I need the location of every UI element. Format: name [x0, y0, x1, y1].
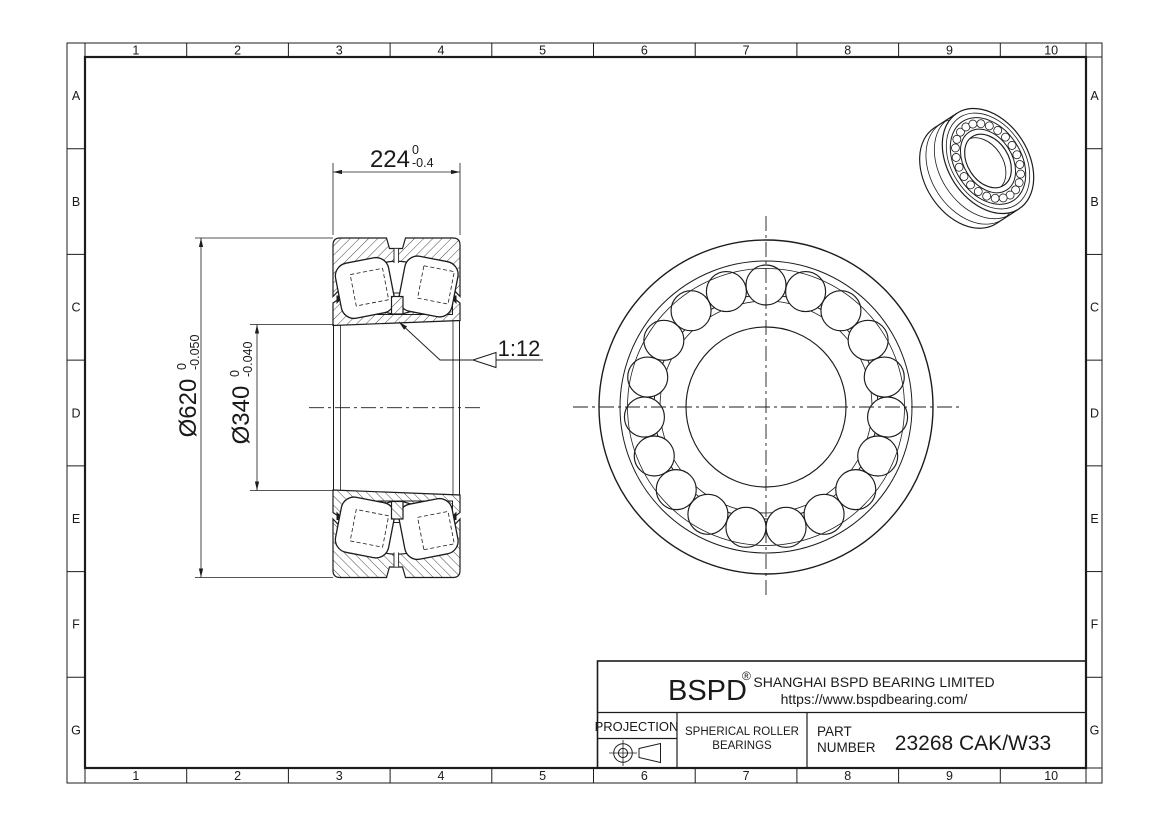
grid-col-label-top: 5: [539, 43, 546, 57]
grid-row-label-right: E: [1090, 512, 1098, 526]
roller: [688, 494, 728, 534]
grid-col-label-bottom: 7: [743, 769, 750, 783]
arrowhead: [199, 569, 203, 578]
part-label-line2: NUMBER: [817, 740, 876, 755]
arrowhead: [255, 482, 259, 491]
taper-annotation: 1:12: [399, 322, 543, 368]
grid-row-label-left: G: [71, 723, 81, 737]
taper-symbol: [473, 353, 496, 368]
dimension-od-value: Ø620: [175, 379, 202, 438]
section-top-half: [333, 238, 460, 326]
arrowhead: [199, 238, 203, 247]
part-label-line1: PART: [817, 724, 852, 739]
dimension-width-value: 224: [370, 146, 410, 173]
roller: [624, 397, 664, 437]
product-type-line1: SPHERICAL ROLLER: [685, 726, 799, 738]
roller-right-section: [397, 254, 461, 319]
grid-row-label-right: B: [1090, 195, 1098, 209]
grid-col-label-top: 3: [336, 43, 343, 57]
dimension-bore-value: Ø340: [228, 386, 255, 445]
grid-row-label-left: C: [71, 301, 80, 315]
roller: [864, 357, 904, 397]
grid-col-label-bottom: 6: [641, 769, 648, 783]
arrowhead: [451, 170, 460, 174]
roller-left-section: [333, 255, 397, 320]
grid-col-label-top: 6: [641, 43, 648, 57]
dimension-width-tol-lower: -0.4: [412, 156, 434, 170]
grid-col-label-bottom: 8: [844, 769, 851, 783]
dimension-bore-tol-upper: 0: [228, 370, 242, 377]
drawing-sheet: 1122334455667788991010AABBCCDDEEFFGG: [0, 0, 1169, 826]
grid-col-label-top: 1: [132, 43, 139, 57]
part-number: 23268 CAK/W33: [895, 732, 1051, 755]
projection-symbol-icon: [609, 740, 661, 766]
roller: [868, 397, 908, 437]
grid-col-label-bottom: 10: [1044, 769, 1058, 783]
roller: [848, 320, 888, 360]
grid-col-label-bottom: 4: [437, 769, 444, 783]
company-name: SHANGHAI BSPD BEARING LIMITED: [753, 674, 994, 690]
grid-row-label-left: E: [72, 512, 80, 526]
registered-mark: ®: [742, 669, 751, 683]
grid-row-label-left: A: [72, 89, 81, 103]
grid-row-label-right: C: [1090, 301, 1099, 315]
arrowhead: [255, 325, 259, 334]
grid-row-label-right: F: [1091, 618, 1099, 632]
projection-label: PROJECTION: [595, 719, 679, 734]
taper-value: 1:12: [498, 336, 541, 361]
grid-row-label-left: B: [72, 195, 80, 209]
front-view: [573, 216, 959, 599]
brand-logo: BSPD: [668, 675, 747, 707]
oil-hole: [394, 249, 399, 263]
company-website: https://www.bspdbearing.com/: [781, 691, 968, 707]
grid-row-label-left: F: [72, 618, 80, 632]
dimension-width: 224 0 -0.4: [333, 143, 460, 235]
projection-cone-icon: [639, 744, 661, 763]
grid-row-label-right: D: [1090, 406, 1099, 420]
section-bottom-half: [333, 490, 460, 578]
roller: [706, 272, 746, 312]
grid-row-label-left: D: [71, 406, 80, 420]
section-view: 224 0 -0.4 Ø620 0 -0.050 Ø340: [175, 143, 543, 578]
grid-row-label-right: A: [1090, 89, 1099, 103]
grid-col-label-top: 8: [844, 43, 851, 57]
dimension-bore-tol-lower: -0.040: [241, 342, 255, 377]
title-block: BSPD ® SHANGHAI BSPD BEARING LIMITED htt…: [595, 661, 1086, 768]
grid-col-label-top: 2: [234, 43, 241, 57]
grid-col-label-bottom: 1: [132, 769, 139, 783]
grid-col-label-top: 9: [946, 43, 953, 57]
arrowhead: [333, 170, 342, 174]
engineering-drawing: 1122334455667788991010AABBCCDDEEFFGG: [0, 0, 1169, 826]
roller: [858, 436, 898, 476]
grid-col-label-top: 4: [437, 43, 444, 57]
dimension-od-tol-upper: 0: [175, 363, 189, 370]
roller: [786, 272, 826, 312]
grid-col-label-bottom: 9: [946, 769, 953, 783]
product-type-line2: BEARINGS: [712, 740, 772, 752]
grid-col-label-top: 10: [1044, 43, 1058, 57]
dimension-width-tol-upper: 0: [412, 143, 419, 157]
grid-col-label-top: 7: [743, 43, 750, 57]
dimension-od-tol-lower: -0.050: [188, 335, 202, 370]
grid-col-label-bottom: 3: [336, 769, 343, 783]
inner-ring-rib: [392, 297, 404, 315]
grid-col-label-bottom: 5: [539, 769, 546, 783]
roller: [671, 291, 711, 331]
roller: [836, 470, 876, 510]
iso-view: [900, 91, 1052, 246]
roller: [804, 494, 844, 534]
grid-row-label-right: G: [1090, 723, 1100, 737]
roller: [634, 436, 674, 476]
roller: [656, 470, 696, 510]
grid-col-label-bottom: 2: [234, 769, 241, 783]
roller: [628, 357, 668, 397]
